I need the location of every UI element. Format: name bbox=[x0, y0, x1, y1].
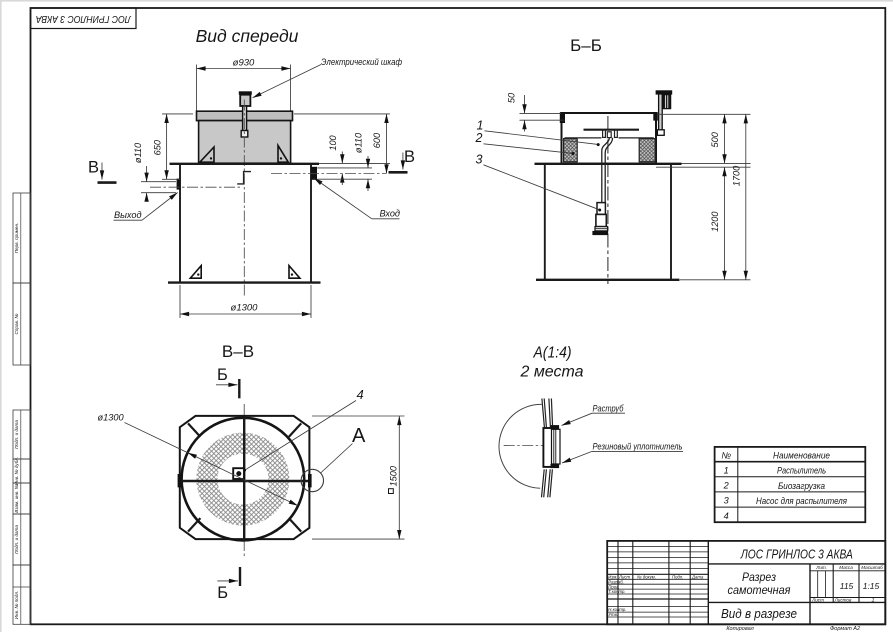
svg-text:Справ. №: Справ. № bbox=[14, 314, 19, 335]
svg-text:№: № bbox=[721, 450, 731, 460]
svg-text:Вид в разрезе: Вид в разрезе bbox=[721, 607, 797, 621]
svg-text:А(1:4): А(1:4) bbox=[533, 345, 572, 362]
svg-text:1700: 1700 bbox=[731, 165, 741, 186]
svg-text:Б: Б bbox=[217, 366, 228, 384]
svg-text:2: 2 bbox=[475, 131, 483, 145]
svg-text:Резиновый уплотнитель: Резиновый уплотнитель bbox=[593, 442, 683, 453]
svg-text:Взам. инв. №: Взам. инв. № bbox=[14, 484, 19, 512]
svg-text:3: 3 bbox=[724, 496, 730, 506]
svg-text:4: 4 bbox=[357, 387, 364, 402]
svg-text:ø1300: ø1300 bbox=[231, 303, 259, 314]
svg-text:500: 500 bbox=[710, 131, 720, 147]
svg-text:А: А bbox=[352, 425, 366, 447]
svg-text:№ докум.: № докум. bbox=[637, 574, 656, 579]
svg-text:Лит.: Лит. bbox=[815, 565, 827, 570]
svg-text:1: 1 bbox=[724, 465, 729, 475]
svg-text:Вид спереди: Вид спереди bbox=[196, 26, 299, 46]
svg-text:Подп. и дата: Подп. и дата bbox=[14, 420, 19, 449]
svg-text:ЛОС ГРИНЛОС 3 АКВА: ЛОС ГРИНЛОС 3 АКВА bbox=[740, 548, 853, 562]
svg-text:ø110: ø110 bbox=[133, 142, 143, 163]
svg-text:50: 50 bbox=[507, 92, 517, 103]
svg-text:Б: Б bbox=[217, 584, 228, 602]
svg-text:Инв. № дубл.: Инв. № дубл. bbox=[14, 457, 19, 485]
svg-text:Лист: Лист bbox=[811, 597, 824, 602]
svg-text:Дата: Дата bbox=[691, 574, 704, 579]
svg-text:ø1300: ø1300 bbox=[98, 413, 125, 423]
svg-text:600: 600 bbox=[372, 132, 382, 148]
svg-text:Наименование: Наименование bbox=[773, 451, 830, 461]
svg-text:Подп.: Подп. bbox=[672, 574, 683, 579]
svg-text:3: 3 bbox=[476, 152, 483, 166]
svg-text:Распылитель: Распылитель bbox=[777, 466, 826, 476]
svg-text:Выход: Выход bbox=[114, 210, 142, 220]
svg-text:1500: 1500 bbox=[389, 465, 399, 486]
svg-text:Масса: Масса bbox=[839, 565, 853, 570]
svg-text:4: 4 bbox=[724, 511, 729, 521]
svg-text:Биозагрузка: Биозагрузка bbox=[778, 481, 825, 491]
svg-text:Масштаб: Масштаб bbox=[861, 565, 883, 570]
svg-text:Т.контр.: Т.контр. bbox=[608, 589, 625, 594]
svg-text:1:15: 1:15 bbox=[863, 581, 880, 591]
svg-text:Вход: Вход bbox=[380, 209, 401, 219]
svg-text:Б–Б: Б–Б bbox=[570, 36, 602, 55]
svg-text:ø110: ø110 bbox=[354, 132, 364, 153]
svg-text:Листов: Листов bbox=[834, 597, 852, 602]
svg-text:Электрический шкаф: Электрический шкаф bbox=[321, 57, 402, 67]
svg-text:1200: 1200 bbox=[710, 211, 720, 232]
svg-text:1: 1 bbox=[871, 598, 874, 604]
svg-text:100: 100 bbox=[328, 134, 338, 150]
svg-text:Подп. и дата: Подп. и дата bbox=[14, 525, 19, 554]
svg-text:Инв. № подл.: Инв. № подл. bbox=[14, 591, 19, 620]
svg-text:Копировал: Копировал bbox=[726, 626, 753, 632]
svg-text:Разрез: Разрез bbox=[742, 572, 777, 584]
svg-text:650: 650 bbox=[153, 139, 163, 155]
svg-text:ЛОС ГРИНЛОС 3 АКВА: ЛОС ГРИНЛОС 3 АКВА bbox=[36, 13, 132, 25]
svg-text:В: В bbox=[88, 159, 99, 177]
svg-text:Формат А2: Формат А2 bbox=[830, 626, 860, 632]
svg-text:2: 2 bbox=[723, 481, 729, 491]
svg-text:115: 115 bbox=[840, 581, 854, 591]
svg-text:Утв.: Утв. bbox=[608, 612, 618, 617]
svg-text:Насос для распылителя: Насос для распылителя bbox=[756, 496, 847, 506]
svg-text:2 места: 2 места bbox=[519, 364, 583, 381]
svg-text:В: В bbox=[404, 148, 415, 166]
svg-text:самотечная: самотечная bbox=[728, 585, 791, 597]
svg-text:Перв. примен.: Перв. примен. bbox=[14, 223, 19, 254]
svg-text:ø930: ø930 bbox=[233, 58, 255, 69]
svg-text:В–В: В–В bbox=[222, 342, 254, 361]
